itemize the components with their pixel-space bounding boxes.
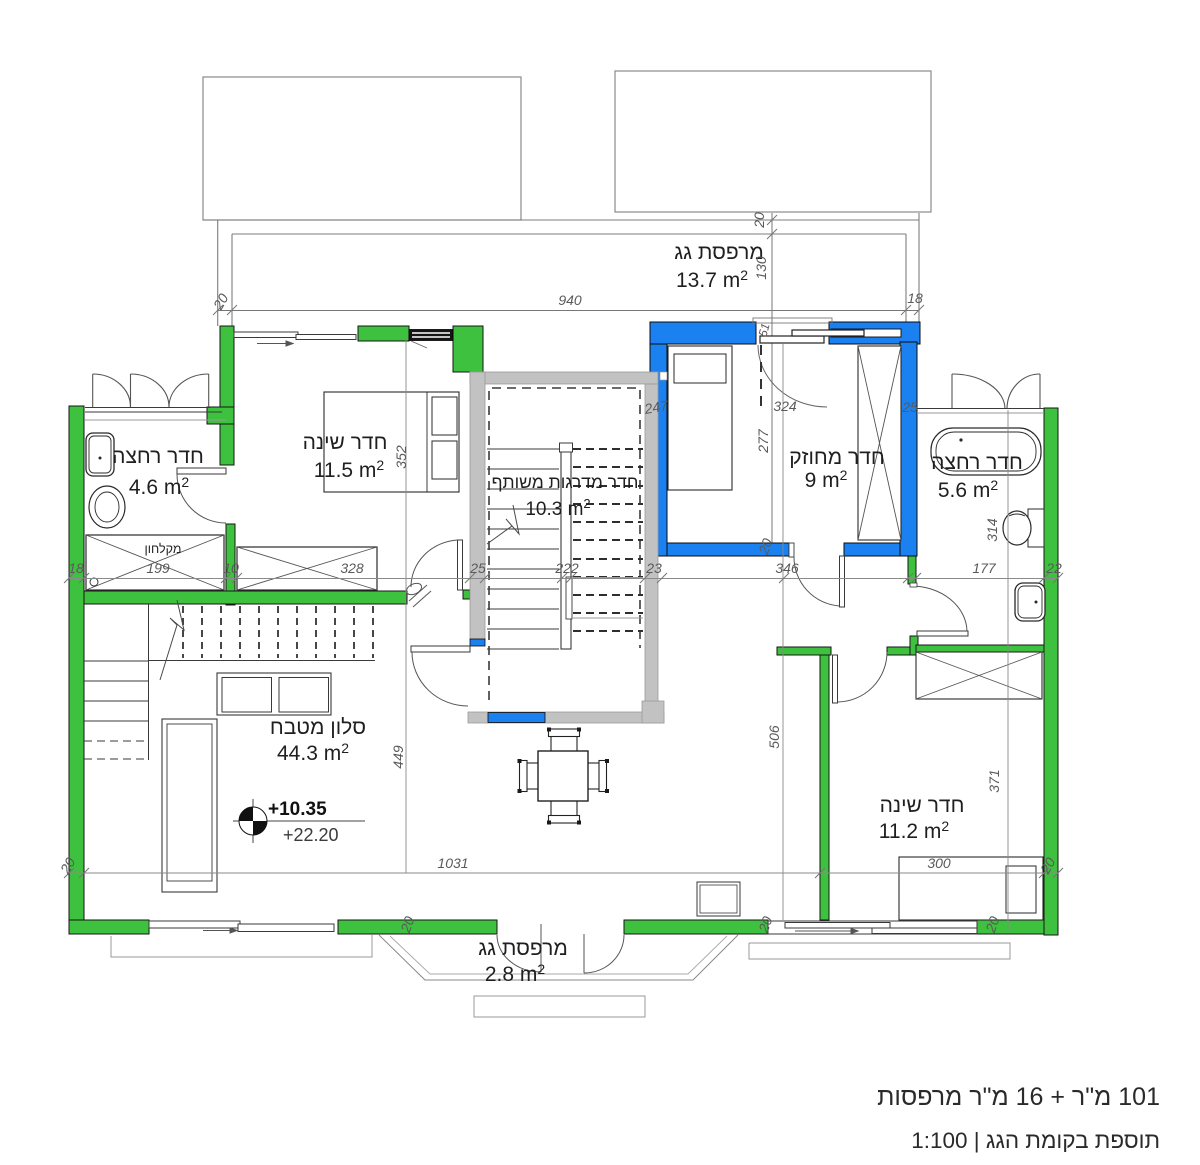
svg-text:300: 300 [927,855,951,871]
svg-text:20: 20 [751,212,767,229]
svg-text:506: 506 [766,725,782,749]
svg-text:130: 130 [753,256,769,280]
svg-text:449: 449 [390,745,406,769]
svg-text:277: 277 [755,428,771,454]
svg-text:מקלחון: מקלחון [145,542,182,556]
svg-text:מרפסת גג: מרפסת גג [478,937,568,960]
svg-text:10: 10 [223,560,239,576]
svg-text:371: 371 [986,769,1002,792]
svg-text:314: 314 [984,518,1000,542]
svg-text:4.6 m2: 4.6 m2 [129,474,190,499]
svg-text:18: 18 [68,560,84,576]
svg-text:2.8 m2: 2.8 m2 [485,961,546,986]
svg-text:5.6 m2: 5.6 m2 [938,477,999,502]
svg-text:22: 22 [1045,560,1062,576]
svg-text:+22.20: +22.20 [283,825,339,845]
svg-text:222: 222 [554,560,579,576]
svg-text:328: 328 [340,560,364,576]
svg-text:חדר שינה: חדר שינה [880,794,965,817]
svg-text:סלון מטבח: סלון מטבח [270,716,366,739]
svg-text:חדר שינה: חדר שינה [303,431,388,454]
svg-text:940: 940 [558,292,582,308]
svg-text:44.3 m2: 44.3 m2 [277,740,349,765]
svg-text:חדר רחצה: חדר רחצה [112,445,204,468]
svg-text:מרפסת גג: מרפסת גג [674,241,764,264]
svg-text:1031: 1031 [437,855,468,871]
svg-text:11.5 m2: 11.5 m2 [314,457,385,482]
svg-text:101 מ"ר + 16 מ"ר מרפסות: 101 מ"ר + 16 מ"ר מרפסות [877,1083,1160,1111]
svg-text:חדר רחצה: חדר רחצה [931,451,1023,474]
svg-text:10.3 m2: 10.3 m2 [525,496,590,520]
svg-text:25: 25 [901,399,918,415]
svg-text:177: 177 [972,560,997,576]
svg-text:23: 23 [645,560,662,576]
svg-text:199: 199 [146,560,170,576]
svg-text:25: 25 [469,560,486,576]
svg-text:חדר מחוזק: חדר מחוזק [789,446,884,469]
svg-text:חדר מדרגות משותף: חדר מדרגות משותף [492,472,639,492]
svg-text:תוספת בקומת הגג | 1:100: תוספת בקומת הגג | 1:100 [911,1128,1160,1153]
svg-text:18: 18 [907,290,923,306]
svg-text:+10.35: +10.35 [268,799,327,820]
svg-text:346: 346 [775,560,799,576]
svg-text:11.2 m2: 11.2 m2 [879,818,950,843]
svg-text:13.7 m2: 13.7 m2 [676,267,748,292]
svg-text:324: 324 [773,398,797,414]
svg-text:352: 352 [393,445,409,469]
